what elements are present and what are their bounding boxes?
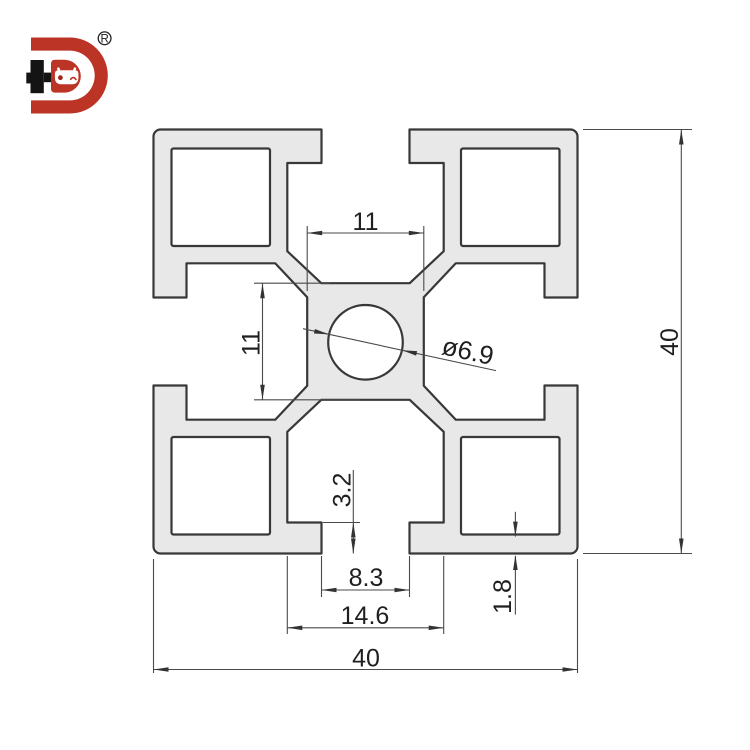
svg-text:8.3: 8.3 bbox=[349, 564, 384, 592]
svg-text:14.6: 14.6 bbox=[341, 602, 390, 630]
svg-text:1.8: 1.8 bbox=[489, 579, 517, 614]
svg-text:R: R bbox=[100, 33, 108, 45]
svg-text:11: 11 bbox=[238, 330, 266, 356]
svg-text:40: 40 bbox=[352, 645, 380, 673]
svg-text:40: 40 bbox=[656, 328, 684, 356]
svg-text:11: 11 bbox=[353, 208, 379, 236]
svg-text:3.2: 3.2 bbox=[329, 473, 357, 508]
